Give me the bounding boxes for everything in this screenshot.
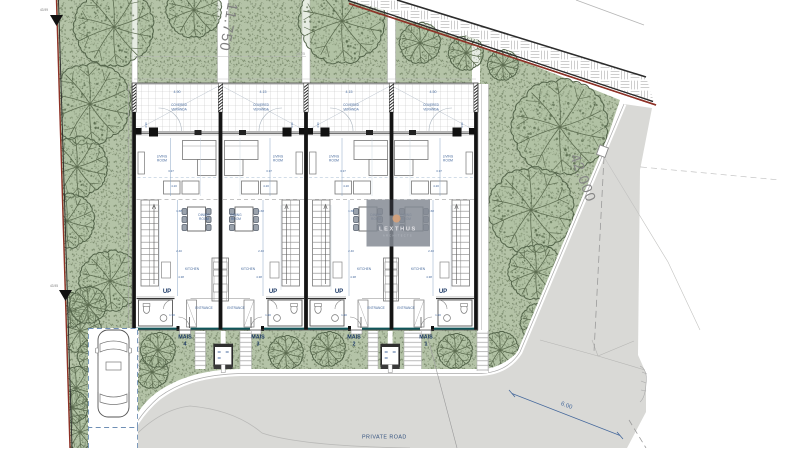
svg-text:ROOM: ROOM [157,159,167,163]
svg-text:4.90: 4.90 [174,90,181,94]
svg-text:4.20: 4.20 [171,184,177,188]
svg-text:4.38: 4.38 [256,275,262,279]
svg-text:4.38: 4.38 [426,275,432,279]
svg-text:COVERED: COVERED [171,103,187,107]
svg-text:MAIS: MAIS [178,335,192,341]
svg-text:3.37: 3.37 [340,169,346,173]
svg-text:COVERED: COVERED [253,103,269,107]
svg-text:UP: UP [439,289,447,295]
svg-text:VERANDA: VERANDA [253,108,269,112]
svg-text:3.90: 3.90 [144,122,148,128]
svg-text:1.90: 1.90 [169,313,175,317]
svg-text:KITCHEN: KITCHEN [411,267,426,271]
svg-text:ARCHITECTS: ARCHITECTS [383,235,413,238]
svg-text:3.37: 3.37 [436,169,442,173]
svg-text:ROOM: ROOM [329,159,339,163]
svg-text:KITCHEN: KITCHEN [241,267,256,271]
svg-text:1.90: 1.90 [435,313,441,317]
svg-text:19.25: 19.25 [296,52,305,56]
svg-text:VERANDA: VERANDA [343,108,359,112]
svg-text:ENTRANCE: ENTRANCE [367,306,385,310]
svg-text:VERANDA: VERANDA [423,108,439,112]
svg-text:4.50: 4.50 [430,90,437,94]
svg-text:3.90: 3.90 [316,122,320,128]
svg-text:4: 4 [184,342,187,348]
svg-text:4.15: 4.15 [346,90,353,94]
svg-text:2.40: 2.40 [176,249,182,253]
svg-text:UP: UP [335,289,343,295]
svg-text:VERANDA: VERANDA [171,108,187,112]
svg-text:UP: UP [163,289,171,295]
svg-text:1.68: 1.68 [258,209,264,213]
svg-text:KITCHEN: KITCHEN [357,267,372,271]
svg-text:UP: UP [269,289,277,295]
svg-text:PRIVATE ROAD: PRIVATE ROAD [362,435,407,441]
svg-text:COVERED: COVERED [343,103,359,107]
svg-text:MAIS: MAIS [419,335,433,341]
svg-text:4.38: 4.38 [350,275,356,279]
svg-text:ROOM: ROOM [231,217,241,221]
svg-text:4.20: 4.20 [263,184,269,188]
svg-text:2: 2 [353,342,356,348]
svg-text:1.68: 1.68 [176,209,182,213]
svg-text:2.40: 2.40 [428,249,434,253]
svg-text:4.20: 4.20 [433,184,439,188]
svg-text:2.40: 2.40 [348,249,354,253]
svg-text:ENTRANCE: ENTRANCE [195,306,213,310]
svg-text:1: 1 [425,342,428,348]
svg-text:LEXTHUS: LEXTHUS [379,227,417,233]
svg-text:MAIS: MAIS [251,335,265,341]
svg-text:3.90: 3.90 [460,122,464,128]
svg-text:43.99: 43.99 [40,8,48,12]
svg-text:COVERED: COVERED [423,103,439,107]
svg-text:4.15: 4.15 [260,90,267,94]
svg-text:4.20: 4.20 [343,184,349,188]
svg-text:3.37: 3.37 [168,169,174,173]
svg-text:ROOM: ROOM [199,217,209,221]
svg-text:1.68: 1.68 [348,209,354,213]
svg-text:3.37: 3.37 [266,169,272,173]
svg-text:MAIS: MAIS [347,335,361,341]
svg-text:1.90: 1.90 [341,313,347,317]
svg-text:3: 3 [257,342,260,348]
svg-text:ROOM: ROOM [273,159,283,163]
svg-text:ENTRANCE: ENTRANCE [227,306,245,310]
svg-text:43.95: 43.95 [50,284,58,288]
svg-text:3.90: 3.90 [290,122,294,128]
svg-text:1.90: 1.90 [265,313,271,317]
svg-text:4.38: 4.38 [178,275,184,279]
svg-text:2.40: 2.40 [258,249,264,253]
svg-text:ROOM: ROOM [443,159,453,163]
svg-text:KITCHEN: KITCHEN [185,267,200,271]
svg-text:ENTRANCE: ENTRANCE [397,306,415,310]
